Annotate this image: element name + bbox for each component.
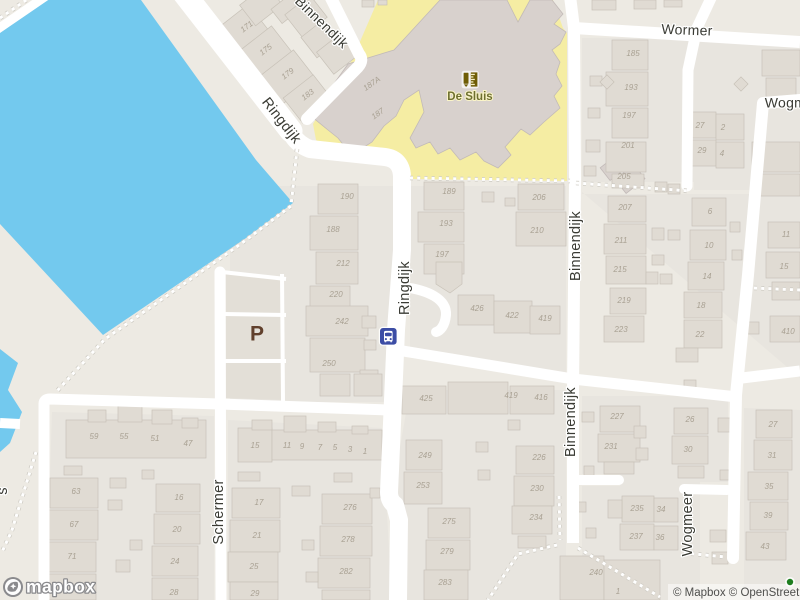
svg-text:51: 51 (151, 434, 160, 443)
svg-text:282: 282 (338, 567, 353, 576)
svg-text:227: 227 (609, 412, 624, 421)
svg-text:201: 201 (620, 141, 634, 150)
svg-text:P: P (250, 323, 264, 346)
svg-text:278: 278 (340, 535, 355, 544)
svg-text:226: 226 (531, 453, 546, 462)
svg-text:212: 212 (335, 259, 350, 268)
svg-text:© Mapbox © OpenStreetMap: © Mapbox © OpenStreetMap (673, 587, 800, 599)
svg-text:43: 43 (761, 542, 770, 551)
svg-text:39: 39 (764, 511, 773, 520)
svg-text:27: 27 (695, 121, 705, 130)
svg-text:242: 242 (334, 317, 349, 326)
svg-text:279: 279 (439, 547, 454, 556)
svg-text:235: 235 (629, 504, 644, 513)
svg-text:59: 59 (90, 432, 99, 441)
svg-text:190: 190 (340, 192, 354, 201)
svg-text:410: 410 (781, 327, 795, 336)
svg-text:36: 36 (656, 533, 665, 542)
svg-text:2: 2 (720, 123, 726, 132)
svg-text:220: 220 (328, 290, 343, 299)
svg-text:211: 211 (614, 236, 628, 245)
svg-text:20: 20 (172, 525, 182, 534)
svg-text:7: 7 (318, 443, 323, 452)
svg-text:De Sluis: De Sluis (447, 91, 492, 103)
svg-text:mapbox: mapbox (26, 577, 96, 597)
svg-text:234: 234 (528, 513, 543, 522)
svg-text:9: 9 (300, 442, 305, 451)
svg-text:29: 29 (697, 146, 707, 155)
svg-text:283: 283 (437, 578, 452, 587)
svg-text:29: 29 (250, 589, 260, 598)
svg-text:5: 5 (333, 443, 338, 452)
svg-text:71: 71 (68, 552, 77, 561)
svg-text:27: 27 (768, 420, 778, 429)
svg-text:22: 22 (695, 330, 705, 339)
svg-text:34: 34 (657, 505, 666, 514)
svg-text:16: 16 (175, 493, 184, 502)
svg-text:25: 25 (249, 562, 259, 571)
svg-text:422: 422 (505, 311, 519, 320)
svg-text:253: 253 (415, 481, 430, 490)
svg-text:419: 419 (538, 314, 552, 323)
svg-text:Ringdijk: Ringdijk (397, 261, 413, 315)
svg-text:21: 21 (252, 531, 262, 540)
svg-text:28: 28 (169, 588, 179, 597)
svg-text:55: 55 (120, 432, 129, 441)
svg-text:188: 188 (326, 225, 340, 234)
svg-text:425: 425 (419, 394, 433, 403)
svg-text:416: 416 (534, 393, 548, 402)
svg-text:31: 31 (768, 451, 777, 460)
svg-text:67: 67 (70, 520, 79, 529)
svg-text:210: 210 (529, 226, 544, 235)
svg-text:10: 10 (705, 241, 714, 250)
svg-text:230: 230 (529, 484, 544, 493)
svg-text:206: 206 (531, 193, 546, 202)
svg-text:193: 193 (624, 83, 638, 92)
svg-text:Wogmeer: Wogmeer (765, 95, 800, 111)
svg-text:14: 14 (703, 272, 712, 281)
svg-text:231: 231 (603, 442, 617, 451)
svg-text:26: 26 (685, 415, 695, 424)
svg-text:1: 1 (616, 587, 620, 596)
svg-text:Wormer: Wormer (661, 21, 713, 39)
svg-text:Wogmeer: Wogmeer (680, 492, 696, 557)
svg-text:193: 193 (439, 219, 453, 228)
svg-text:185: 185 (626, 49, 640, 58)
svg-text:215: 215 (612, 265, 627, 274)
svg-text:15: 15 (251, 441, 260, 450)
svg-text:250: 250 (321, 359, 336, 368)
svg-text:35: 35 (765, 482, 774, 491)
svg-text:205: 205 (616, 172, 631, 181)
svg-text:s: s (0, 487, 11, 495)
svg-text:197: 197 (435, 250, 449, 259)
svg-text:15: 15 (780, 262, 789, 271)
svg-text:207: 207 (617, 203, 632, 212)
svg-text:419: 419 (504, 391, 518, 400)
svg-text:18: 18 (697, 301, 706, 310)
svg-text:17: 17 (255, 498, 264, 507)
svg-text:223: 223 (613, 325, 628, 334)
svg-text:11: 11 (782, 230, 790, 239)
svg-text:Binnendijk: Binnendijk (563, 387, 579, 457)
svg-text:1: 1 (363, 447, 367, 456)
svg-text:4: 4 (720, 149, 725, 158)
svg-text:3: 3 (348, 445, 353, 454)
svg-text:275: 275 (441, 517, 456, 526)
svg-text:30: 30 (684, 445, 693, 454)
svg-text:24: 24 (170, 557, 180, 566)
svg-text:Schermer: Schermer (211, 479, 227, 544)
svg-text:189: 189 (442, 187, 456, 196)
svg-text:426: 426 (470, 304, 484, 313)
svg-text:63: 63 (72, 487, 81, 496)
svg-text:219: 219 (616, 296, 631, 305)
svg-text:237: 237 (628, 532, 643, 541)
svg-text:249: 249 (417, 451, 432, 460)
svg-text:6: 6 (708, 207, 713, 216)
svg-text:Binnendijk: Binnendijk (568, 211, 584, 281)
svg-text:276: 276 (342, 503, 357, 512)
svg-text:47: 47 (184, 439, 193, 448)
svg-text:197: 197 (622, 111, 636, 120)
svg-text:240: 240 (588, 568, 603, 577)
svg-text:11: 11 (283, 441, 291, 450)
